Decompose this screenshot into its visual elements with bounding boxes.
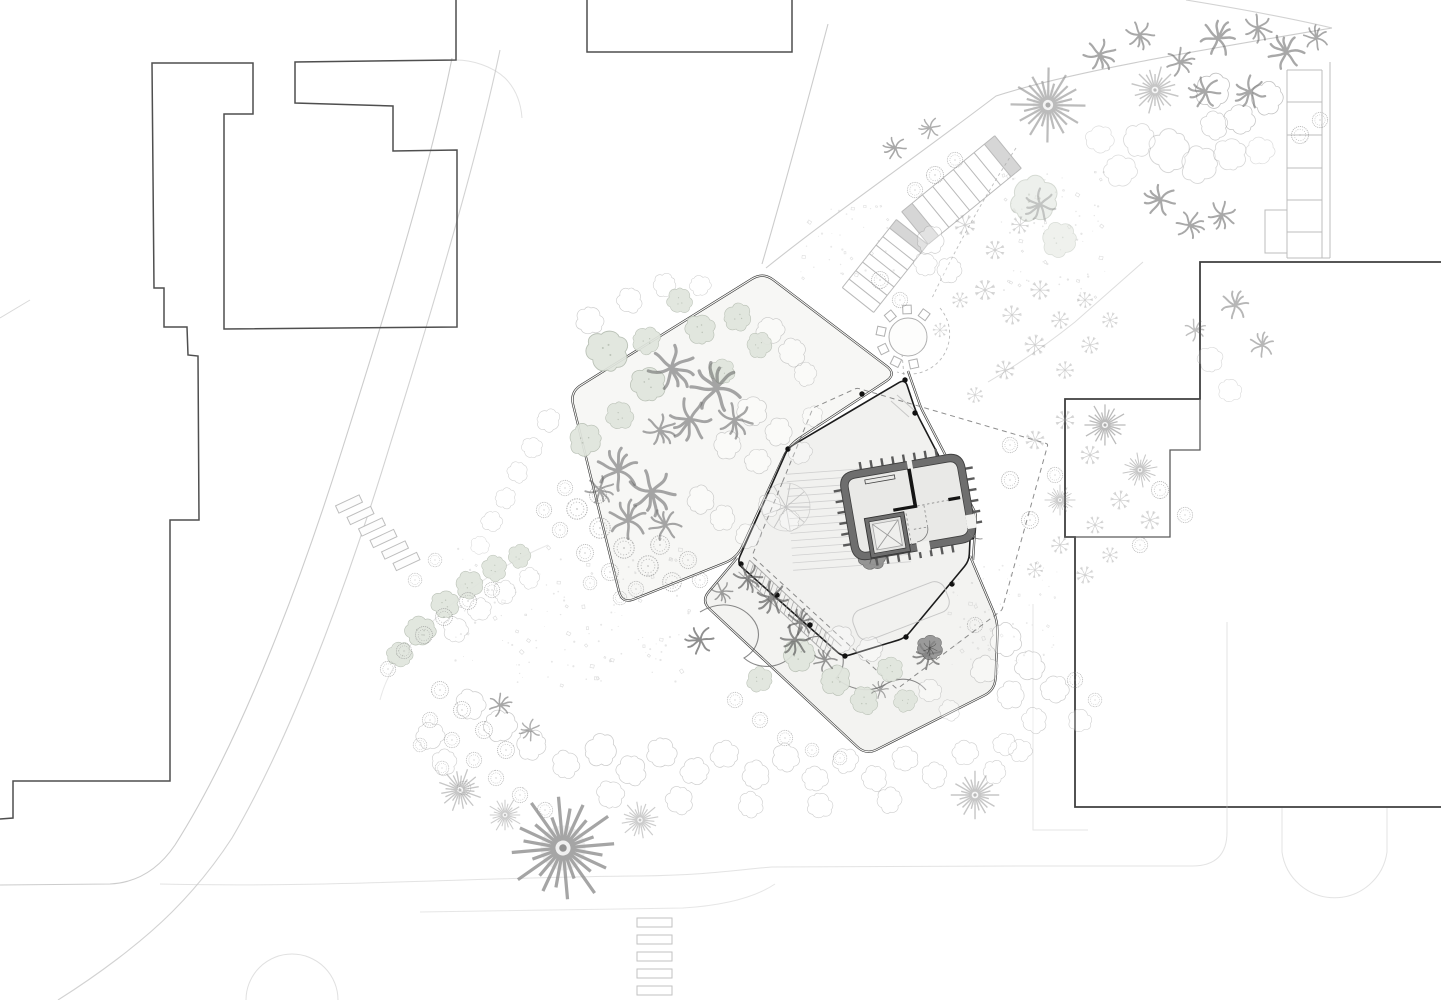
site-plan-page: Architectural site plan — tower floor pl… [0,0,1441,1000]
site-plan-canvas [0,0,1441,1000]
elevator-core [864,512,910,558]
